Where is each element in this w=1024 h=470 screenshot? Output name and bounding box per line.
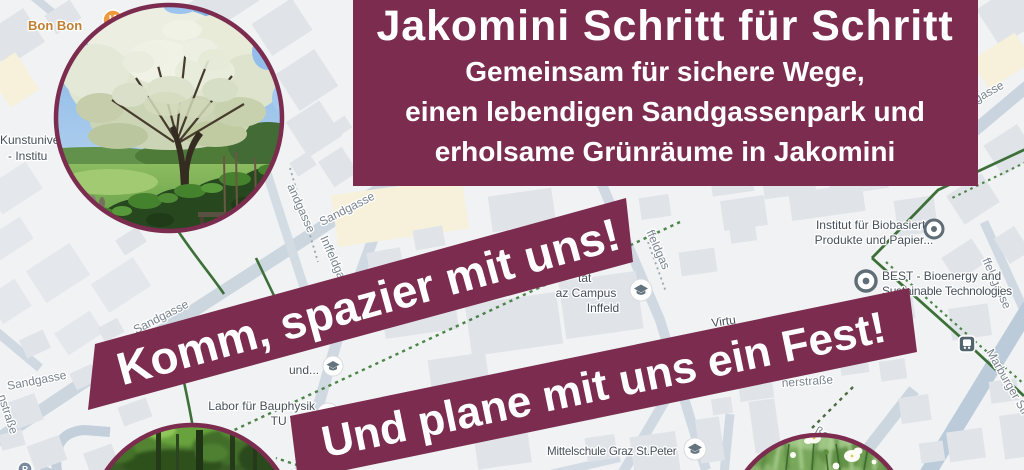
svg-text:Produkte und Papier...: Produkte und Papier...	[815, 233, 934, 247]
svg-text:Bon Bon: Bon Bon	[28, 18, 82, 33]
svg-text:Institut für Biobasierte: Institut für Biobasierte	[816, 218, 932, 232]
svg-text:Inffeld: Inffeld	[587, 301, 619, 315]
svg-text:erholsame Grünräume in Jakomin: erholsame Grünräume in Jakomini	[435, 136, 896, 167]
svg-text:Gemeinsam für sichere Wege,: Gemeinsam für sichere Wege,	[465, 56, 864, 87]
svg-text:Mittelschule Graz St.Peter: Mittelschule Graz St.Peter	[547, 445, 677, 458]
svg-text:Labor für Bauphysik: Labor für Bauphysik	[208, 399, 316, 413]
svg-text:einen lebendigen Sandgassenpar: einen lebendigen Sandgassenpark und	[405, 96, 925, 127]
svg-text:P: P	[22, 465, 28, 470]
svg-text:und...: und...	[289, 363, 319, 377]
svg-text:az Campus: az Campus	[556, 286, 617, 300]
svg-text:- Institu: - Institu	[8, 149, 47, 163]
svg-text:Kunstunive: Kunstunive	[0, 133, 60, 147]
svg-text:BEST - Bioenergy and: BEST - Bioenergy and	[882, 269, 1001, 283]
svg-text:Jakomini Schritt für Schritt: Jakomini Schritt für Schritt	[376, 2, 953, 50]
